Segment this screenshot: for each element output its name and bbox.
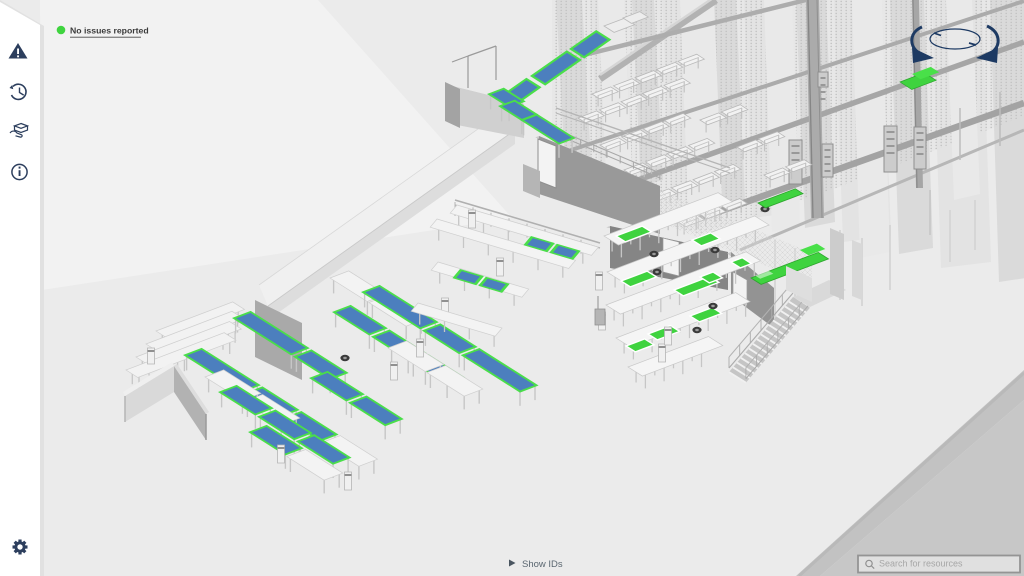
svg-text:Show IDs: Show IDs — [522, 559, 563, 570]
svg-text:Search for resources: Search for resources — [879, 559, 963, 569]
svg-text:No issues reported: No issues reported — [70, 26, 149, 36]
